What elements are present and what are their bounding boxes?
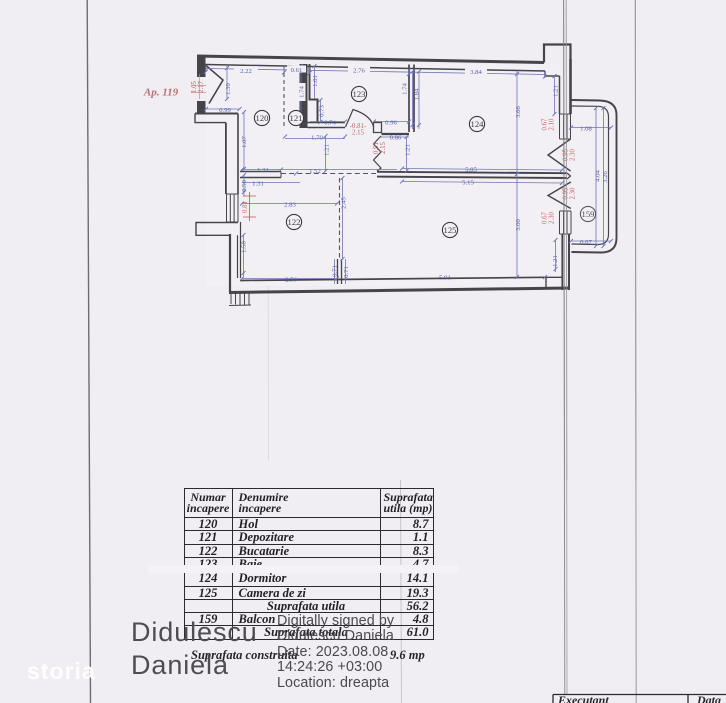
svg-text:Executant: Executant xyxy=(557,693,609,703)
svg-text:Data: Data xyxy=(696,693,721,703)
